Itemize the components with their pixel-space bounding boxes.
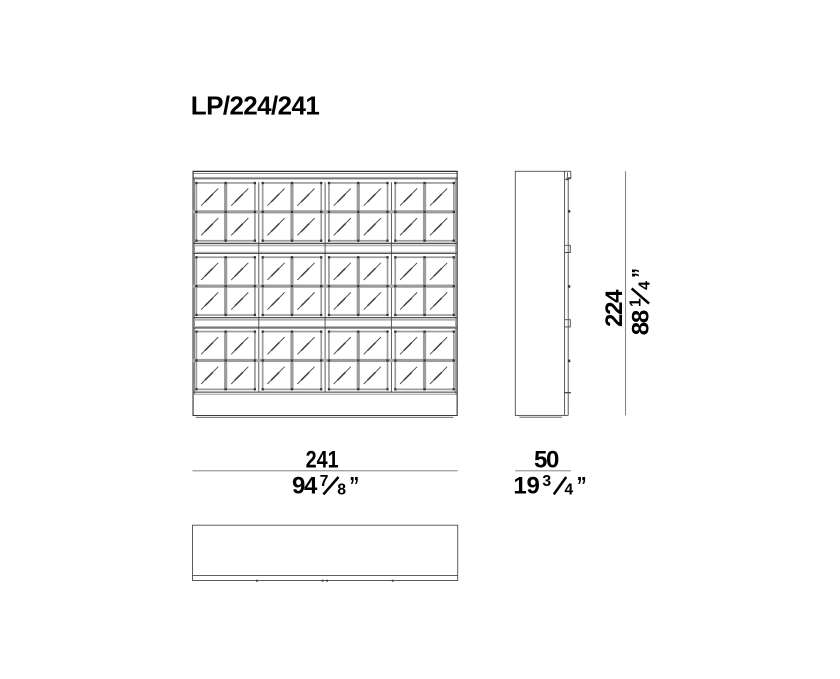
svg-text:224: 224: [601, 289, 628, 327]
svg-text:94: 94: [292, 473, 318, 500]
svg-text:8: 8: [337, 482, 346, 499]
svg-text:LP/224/241: LP/224/241: [191, 91, 320, 121]
svg-text:3: 3: [542, 473, 551, 490]
svg-text:7: 7: [320, 473, 329, 490]
svg-text:88: 88: [627, 310, 654, 335]
svg-text:241: 241: [306, 446, 339, 473]
svg-text:”: ”: [627, 268, 654, 278]
svg-text:50: 50: [534, 446, 559, 473]
svg-text:19: 19: [513, 473, 539, 500]
svg-text:1: 1: [628, 298, 645, 307]
svg-text:4: 4: [564, 482, 573, 499]
svg-text:”: ”: [577, 473, 587, 500]
svg-text:”: ”: [349, 473, 359, 500]
svg-text:4: 4: [636, 281, 653, 290]
